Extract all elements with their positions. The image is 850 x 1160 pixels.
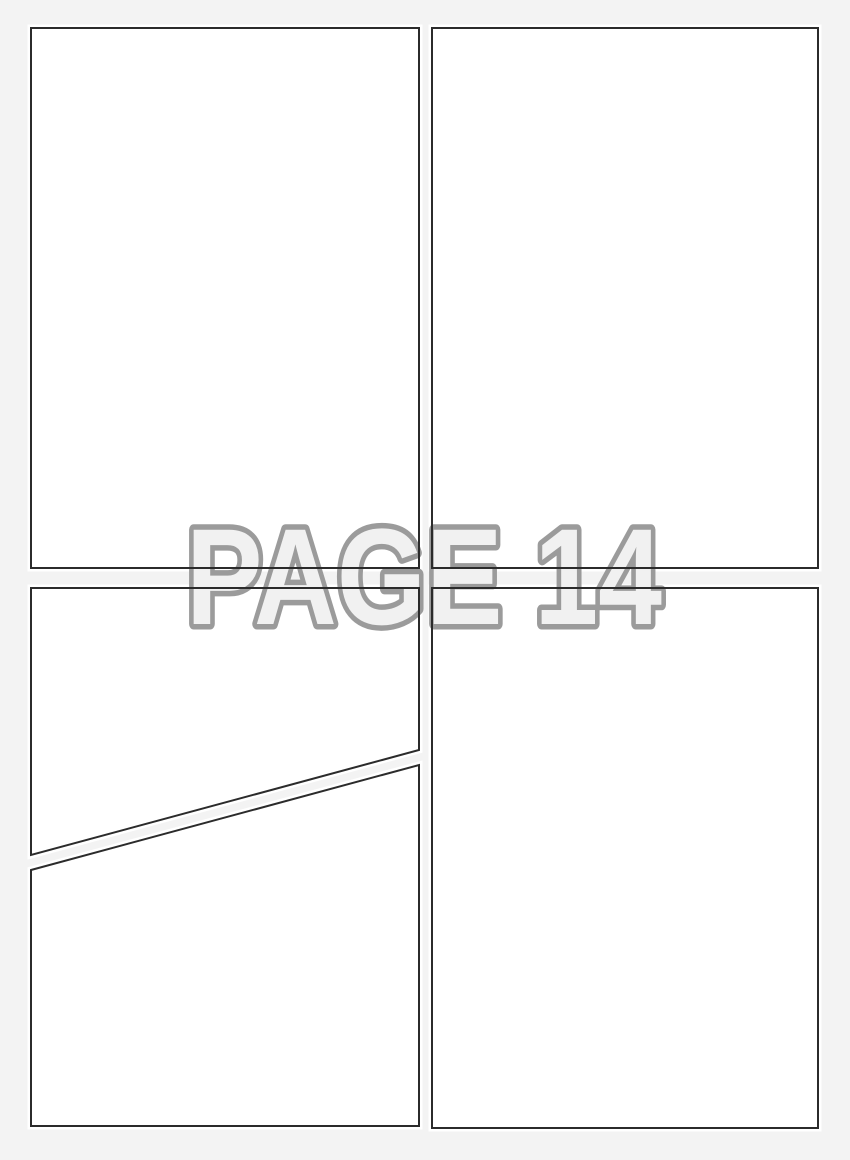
panel-bottom-right-fill [432,588,818,1128]
panel-grid: PAGE 14 [0,0,850,1160]
page-number-watermark: PAGE 14 [186,501,662,654]
comic-page-template: PAGE 14 [0,0,850,1160]
panel-top-left-fill [31,28,419,568]
panel-top-right-fill [432,28,818,568]
